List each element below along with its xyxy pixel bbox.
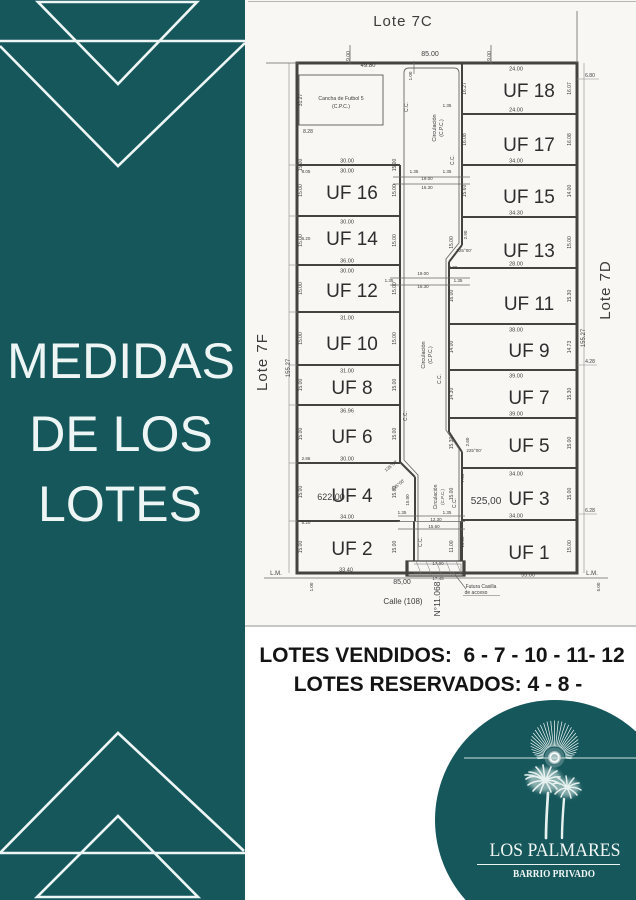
svg-text:1.00: 1.00 [408,71,413,80]
svg-text:15.30: 15.30 [567,290,573,303]
svg-text:15.00: 15.00 [392,184,398,197]
svg-text:14.00: 14.00 [449,341,455,354]
svg-text:UF 10: UF 10 [326,334,378,355]
svg-text:5.00: 5.00 [596,582,601,591]
svg-text:N°11.068: N°11.068 [432,581,442,616]
svg-text:C.C.: C.C. [404,102,410,112]
svg-text:30.00: 30.00 [340,220,354,226]
svg-text:8.05: 8.05 [302,169,311,174]
svg-text:34.00: 34.00 [340,515,354,521]
svg-text:1.35: 1.35 [410,169,419,174]
svg-text:34.30: 34.30 [509,211,523,217]
svg-text:BARRIO PRIVADO: BARRIO PRIVADO [513,868,595,880]
svg-text:1.35: 1.35 [454,278,463,283]
svg-text:LOTES: LOTES [38,476,202,532]
svg-text:15.30: 15.30 [567,388,573,401]
svg-text:1.35: 1.35 [443,510,452,515]
svg-text:2.86: 2.86 [302,456,311,461]
svg-text:30.00: 30.00 [340,457,354,463]
svg-text:9.00: 9.00 [346,51,352,61]
svg-text:(C.P.C.): (C.P.C.) [439,119,445,137]
svg-text:UF 11: UF 11 [504,294,554,315]
svg-text:15.00: 15.00 [405,494,410,506]
svg-text:LOS PALMARES: LOS PALMARES [490,840,621,861]
svg-text:39.00: 39.00 [509,412,523,418]
svg-text:15.00: 15.00 [298,332,304,345]
svg-text:14.73: 14.73 [567,341,573,354]
svg-text:MEDIDAS: MEDIDAS [7,333,235,389]
svg-text:Calle (108): Calle (108) [383,597,422,606]
svg-text:17,00: 17,00 [432,561,444,566]
svg-text:525,00: 525,00 [471,496,502,507]
svg-text:(C.P.C.): (C.P.C.) [332,104,350,110]
svg-text:8.28: 8.28 [303,129,313,135]
svg-text:1.00: 1.00 [309,582,314,591]
svg-text:1.35: 1.35 [385,278,394,283]
svg-text:C.C.: C.C. [437,374,443,384]
svg-text:Cancha de Futbol 5: Cancha de Futbol 5 [318,96,363,102]
svg-text:Circulación: Circulación [432,114,438,141]
svg-text:15.00: 15.00 [298,282,304,295]
svg-text:15.00: 15.00 [392,541,398,554]
svg-text:2.90: 2.90 [463,230,468,239]
svg-text:UF 16: UF 16 [326,183,378,204]
svg-text:36.96: 36.96 [340,409,354,415]
svg-text:UF 3: UF 3 [508,489,549,510]
svg-text:Lote 7F: Lote 7F [254,333,271,391]
svg-text:1.35: 1.35 [443,103,452,108]
svg-text:31.00: 31.00 [340,316,354,322]
svg-text:C.C.: C.C. [452,498,458,508]
svg-text:15.00: 15.00 [567,540,573,553]
svg-text:15.60: 15.60 [428,524,440,529]
svg-text:24.00: 24.00 [509,108,523,114]
svg-text:16.30: 16.30 [417,284,429,289]
svg-text:15.00: 15.00 [567,236,573,249]
svg-text:6.20: 6.20 [302,236,311,241]
svg-text:11.00: 11.00 [460,536,465,547]
svg-text:Circulación: Circulación [433,484,439,509]
svg-text:UF 12: UF 12 [326,281,378,302]
svg-text:Circulación: Circulación [421,341,427,368]
svg-text:16.08: 16.08 [462,133,468,146]
svg-text:15.00: 15.00 [298,428,304,441]
svg-text:15.00: 15.00 [392,159,398,172]
svg-text:49.80: 49.80 [360,63,376,69]
svg-text:UF 2: UF 2 [331,539,372,560]
svg-text:(C.P.C.): (C.P.C.) [440,489,445,505]
svg-text:15.30: 15.30 [449,437,455,450]
svg-text:19.00: 19.00 [417,271,429,276]
svg-text:6.80: 6.80 [585,73,595,79]
svg-text:C.C.: C.C. [418,537,424,547]
svg-text:33.40: 33.40 [339,568,353,574]
svg-text:4.28: 4.28 [585,359,595,365]
svg-text:85.00: 85.00 [421,51,439,58]
svg-text:UF 9: UF 9 [508,341,549,362]
svg-text:DE LOS: DE LOS [29,406,212,462]
svg-text:LOTES VENDIDOS: 6 - 7 - 10 -: LOTES VENDIDOS: 6 - 7 - 10 - 11- 12 [259,644,624,667]
svg-text:11.00: 11.00 [449,540,455,552]
svg-text:24.00: 24.00 [509,67,523,73]
svg-text:15.00: 15.00 [392,282,398,295]
svg-text:34.00: 34.00 [509,472,523,478]
svg-text:30.00: 30.00 [340,269,354,275]
svg-text:622,00: 622,00 [317,492,345,502]
svg-text:15.00: 15.00 [298,379,304,392]
svg-text:15.00: 15.00 [567,488,573,501]
svg-text:225°00': 225°00' [466,448,481,453]
svg-text:15.00: 15.00 [392,332,398,345]
svg-text:36.00: 36.00 [340,259,354,265]
svg-text:15.00: 15.00 [298,486,304,499]
svg-text:7.60: 7.60 [460,473,465,482]
svg-text:38.00: 38.00 [509,328,523,334]
svg-text:UF 1: UF 1 [508,543,549,564]
svg-text:(C.P.C.): (C.P.C.) [428,346,434,364]
svg-text:85,00: 85,00 [393,579,411,586]
svg-text:LOTES RESERVADOS: 4 - 8 -: LOTES RESERVADOS: 4 - 8 - [294,673,583,696]
svg-text:34.00: 34.00 [509,159,523,165]
svg-text:34.00: 34.00 [509,514,523,520]
svg-text:31.00: 31.00 [340,369,354,375]
svg-text:UF 6: UF 6 [331,427,372,448]
svg-text:15.00: 15.00 [567,437,573,450]
svg-text:15.00: 15.00 [392,234,398,247]
svg-text:19.00: 19.00 [421,176,433,181]
svg-text:Lote 7D: Lote 7D [597,260,614,320]
svg-text:de acceso: de acceso [465,590,488,596]
svg-text:UF 17: UF 17 [503,135,555,156]
svg-text:15.00: 15.00 [392,428,398,441]
svg-text:C.C.: C.C. [450,155,456,165]
svg-text:30.00: 30.00 [340,159,354,165]
svg-text:9.00: 9.00 [487,51,493,61]
svg-text:28.00: 28.00 [509,262,523,268]
svg-text:2.60: 2.60 [465,437,470,446]
svg-text:16.07: 16.07 [567,82,573,95]
svg-text:1.35: 1.35 [443,169,452,174]
svg-text:UF 13: UF 13 [503,241,555,262]
svg-text:UF 18: UF 18 [503,81,555,102]
svg-text:L.M.: L.M. [586,571,598,577]
svg-text:15.00: 15.00 [392,379,398,392]
svg-text:Lote 7C: Lote 7C [373,13,433,30]
svg-text:3.08: 3.08 [449,265,458,270]
svg-text:6.20: 6.20 [302,520,311,525]
svg-text:6.28: 6.28 [585,508,595,514]
svg-text:39.00: 39.00 [509,374,523,380]
svg-text:15.00: 15.00 [298,541,304,554]
svg-text:UF 7: UF 7 [508,388,549,409]
svg-text:16.27: 16.27 [462,82,468,95]
svg-text:C.C.: C.C. [403,411,409,421]
svg-text:12.30: 12.30 [430,517,442,522]
svg-text:14.00: 14.00 [567,185,573,198]
svg-text:1.35: 1.35 [398,510,407,515]
svg-text:UF 8: UF 8 [331,378,372,399]
svg-text:15.00: 15.00 [298,184,304,197]
svg-text:15.60: 15.60 [462,185,468,198]
svg-text:16.00: 16.00 [449,290,455,303]
svg-text:225°00': 225°00' [456,248,471,253]
svg-text:31.27: 31.27 [298,94,304,107]
svg-text:UF 5: UF 5 [508,436,549,457]
svg-text:UF 15: UF 15 [503,187,555,208]
svg-text:30.00: 30.00 [340,169,354,175]
svg-text:17,45: 17,45 [432,576,444,581]
svg-text:14.30: 14.30 [449,388,455,401]
svg-text:L.M.: L.M. [270,571,282,577]
svg-text:16.30: 16.30 [421,185,433,190]
svg-text:16.08: 16.08 [567,133,573,146]
svg-text:15.00: 15.00 [449,236,455,249]
svg-text:UF 14: UF 14 [326,229,378,250]
